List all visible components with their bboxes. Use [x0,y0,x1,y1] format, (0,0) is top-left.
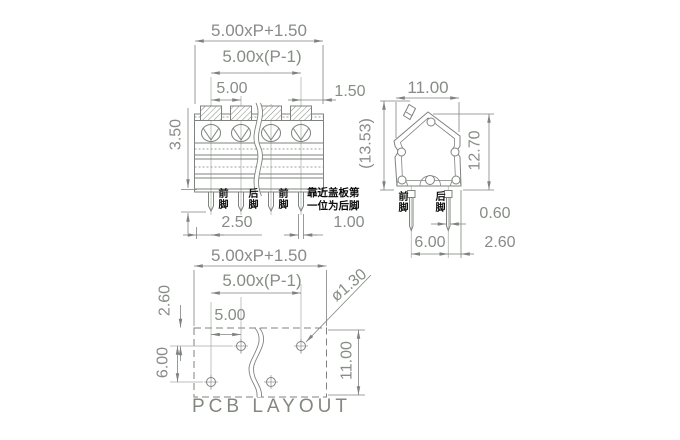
dim-front-offset: 2.50 [212,213,262,232]
dim-pcb-top-offset: 2.60 [156,278,175,324]
dim-pcb-pitch: 5.00 [206,306,254,325]
dim-pcb-overall: 5.00xP+1.50 [196,246,322,265]
dim-front-pitch: 5.00 [206,79,258,98]
dim-pcb-span: 5.00x(P-1) [206,271,318,290]
release-lever [404,105,416,120]
label-front-foot-1: 前脚 [215,188,227,210]
dim-pcb-row-spacing: 6.00 [154,340,173,386]
pcb-layout-caption: PCB LAYOUT [192,397,336,416]
dim-side-total-height: (13.53) [357,108,376,180]
hole [294,339,308,353]
housing-inner [401,118,456,181]
housing-holes [398,118,461,185]
hole [204,375,218,389]
pcb-centerlines [170,284,301,390]
side-pins [408,191,453,231]
dim-front-pin-length: 3.50 [167,113,186,157]
dim-side-pin-thickness: 0.60 [470,204,520,223]
dim-side-edge: 2.60 [477,233,523,252]
clamp-caps [201,106,312,121]
dim-side-height: 12.70 [466,123,485,179]
hole [264,375,278,389]
label-note: 靠近盖板第 一位为后脚 [307,187,369,212]
technical-drawing-page: 5.00xP+1.50 5.00x(P-1) 5.00 1.50 3.50 2.… [0,0,680,440]
dim-side-pin-spacing: 6.00 [408,233,452,252]
dim-front-overall: 5.00xP+1.50 [197,21,321,40]
dim-side-width: 11.00 [399,78,457,97]
label-rear-foot: 后脚 [245,188,257,210]
dim-front-pin-width: 1.00 [326,213,372,232]
dim-front-edge: 1.50 [327,82,373,101]
label-side-rear-foot: 后脚 [432,191,444,213]
hole [234,339,248,353]
break-line-mask [249,328,264,397]
label-side-front-foot: 前脚 [395,191,407,213]
dim-pcb-height: 11.00 [338,332,357,390]
dim-front-span: 5.00x(P-1) [205,47,319,66]
label-front-foot-2: 前脚 [275,188,287,210]
